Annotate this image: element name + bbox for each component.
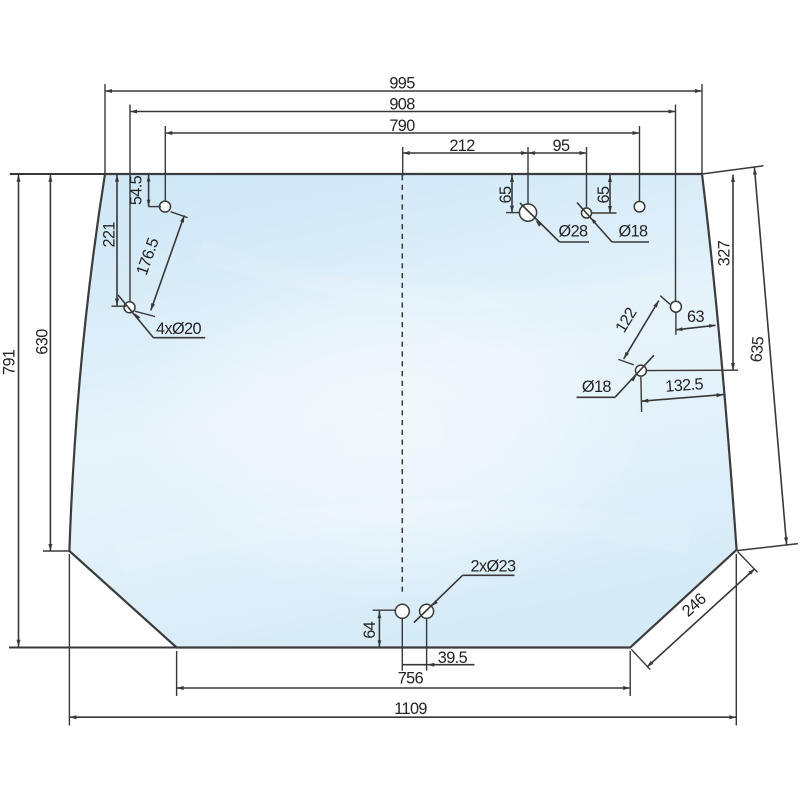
svg-text:Ø18: Ø18	[582, 378, 612, 396]
svg-text:630: 630	[34, 329, 52, 355]
svg-text:95: 95	[553, 137, 570, 155]
svg-text:54.5: 54.5	[128, 175, 146, 205]
svg-text:63: 63	[687, 308, 704, 326]
svg-text:2xØ23: 2xØ23	[471, 558, 517, 576]
svg-text:791: 791	[1, 349, 19, 375]
svg-text:221: 221	[101, 222, 119, 248]
svg-text:4xØ20: 4xØ20	[156, 320, 202, 338]
svg-text:327: 327	[716, 240, 734, 266]
svg-text:212: 212	[449, 137, 475, 155]
svg-text:756: 756	[398, 670, 424, 688]
svg-text:64: 64	[361, 621, 379, 638]
svg-text:1109: 1109	[394, 700, 427, 718]
svg-text:790: 790	[389, 117, 415, 135]
svg-text:65: 65	[595, 186, 613, 203]
svg-text:132.5: 132.5	[665, 375, 704, 396]
svg-text:908: 908	[389, 96, 415, 114]
svg-text:635: 635	[747, 336, 767, 363]
svg-text:65: 65	[497, 186, 515, 203]
svg-text:Ø28: Ø28	[559, 223, 589, 241]
svg-text:39.5: 39.5	[438, 649, 468, 667]
svg-text:Ø18: Ø18	[619, 223, 649, 241]
svg-text:995: 995	[389, 75, 415, 93]
